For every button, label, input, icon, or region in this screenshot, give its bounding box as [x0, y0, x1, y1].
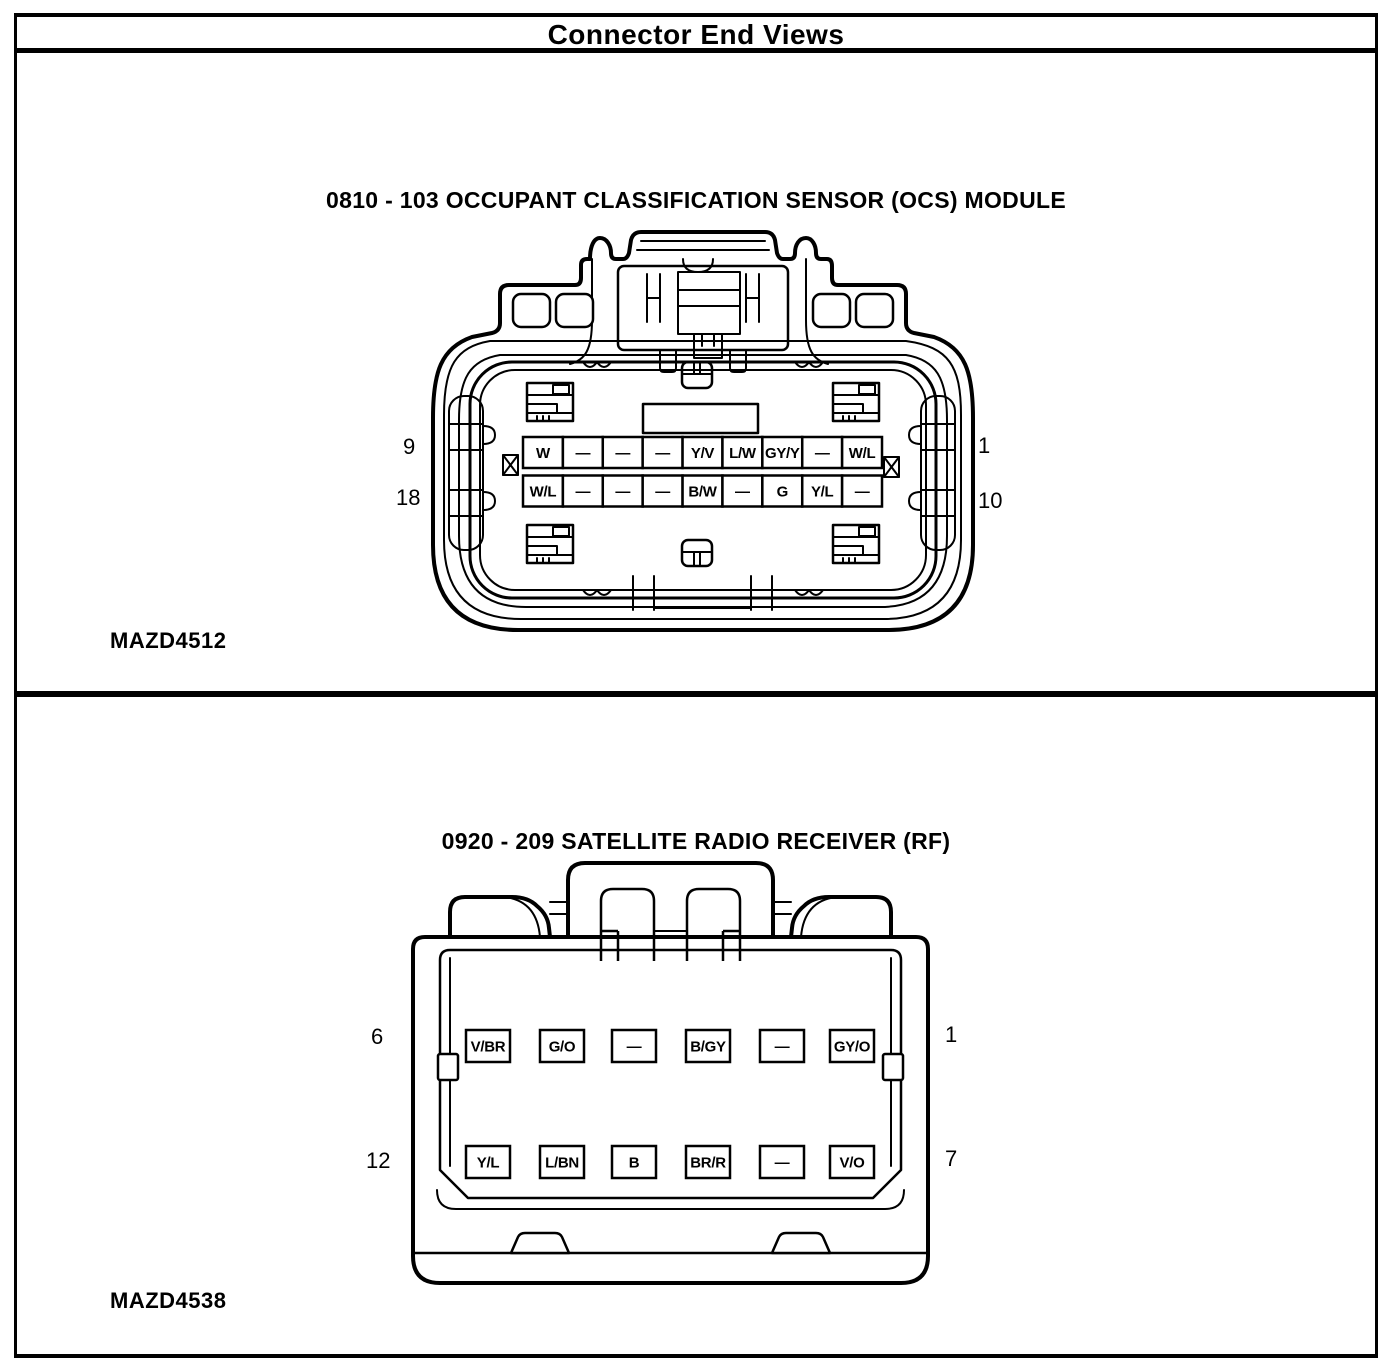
- page-title: Connector End Views: [0, 19, 1392, 51]
- document-page: Connector End Views 0810 - 103 OCCUPANT …: [0, 0, 1392, 1364]
- pin-label: GY/Y: [765, 445, 800, 462]
- pin-label: Y/L: [811, 484, 834, 501]
- pin-label: —: [775, 1039, 790, 1056]
- pin-label: Y/V: [691, 445, 715, 462]
- connector1-title: 0810 - 103 OCCUPANT CLASSIFICATION SENSO…: [0, 187, 1392, 214]
- wall-tab-right: [883, 1054, 903, 1080]
- connector1-pin18-number: 18: [396, 485, 420, 511]
- pin-label: —: [615, 445, 630, 462]
- wall-tab-left: [438, 1054, 458, 1080]
- frame-top-border: [14, 13, 1378, 17]
- connector2-pin1-number: 1: [945, 1022, 957, 1048]
- connector1-drawing: W———Y/VL/WGY/Y—W/LW/L———B/W—GY/L—: [395, 218, 1007, 644]
- pin-label: V/BR: [471, 1039, 506, 1056]
- pin-label: —: [627, 1039, 642, 1056]
- pin-label: V/O: [840, 1155, 866, 1172]
- connector2-figure-label: MAZD4538: [110, 1288, 226, 1314]
- pin-label: G/O: [549, 1039, 576, 1056]
- pin-label: B: [629, 1155, 640, 1172]
- connector1-pin1-number: 1: [978, 433, 990, 459]
- pin-label: G: [777, 484, 788, 501]
- pin-label: —: [815, 445, 830, 462]
- frame-left-border: [14, 13, 17, 1358]
- connector2-pin-grid: V/BRG/O—B/GY—GY/OY/LL/BNBBR/R—V/O: [466, 1030, 874, 1178]
- pin-label: Y/L: [477, 1155, 500, 1172]
- connector2-pin7-number: 7: [945, 1146, 957, 1172]
- connector2-pin12-number: 12: [366, 1148, 390, 1174]
- pin-label: BR/R: [690, 1155, 726, 1172]
- pin-label: —: [855, 484, 870, 501]
- pin-label: —: [575, 484, 590, 501]
- pin-label: —: [775, 1155, 790, 1172]
- center-bottom-tab: [682, 540, 712, 566]
- pin-label: W/L: [530, 484, 557, 501]
- pin-label: L/W: [729, 445, 757, 462]
- connector2-drawing: V/BRG/O—B/GY—GY/OY/LL/BNBBR/R—V/O: [360, 855, 960, 1297]
- connector2-pin6-number: 6: [371, 1024, 383, 1050]
- pin-label: W: [536, 445, 551, 462]
- blank-label-plate: [643, 404, 758, 433]
- connector1-pin-grid: W———Y/VL/WGY/Y—W/LW/L———B/W—GY/L—: [523, 437, 882, 507]
- terminal-clips: [527, 383, 879, 563]
- frame-bottom-border: [14, 1354, 1378, 1358]
- pin-label: GY/O: [834, 1039, 871, 1056]
- pin-label: B/W: [688, 484, 717, 501]
- center-top-tab: [682, 362, 712, 388]
- connector1-pin10-number: 10: [978, 488, 1002, 514]
- connector1-pin9-number: 9: [403, 434, 415, 460]
- pin-label: B/GY: [690, 1039, 726, 1056]
- pin-label: W/L: [849, 445, 876, 462]
- connector2-title: 0920 - 209 SATELLITE RADIO RECEIVER (RF): [0, 828, 1392, 855]
- frame-panel-divider: [14, 691, 1378, 697]
- pin-label: —: [735, 484, 750, 501]
- pin-label: —: [655, 484, 670, 501]
- pin-label: —: [575, 445, 590, 462]
- pin-label: L/BN: [545, 1155, 579, 1172]
- pin-label: —: [655, 445, 670, 462]
- pin-label: —: [615, 484, 630, 501]
- frame-right-border: [1375, 13, 1378, 1358]
- connector1-figure-label: MAZD4512: [110, 628, 226, 654]
